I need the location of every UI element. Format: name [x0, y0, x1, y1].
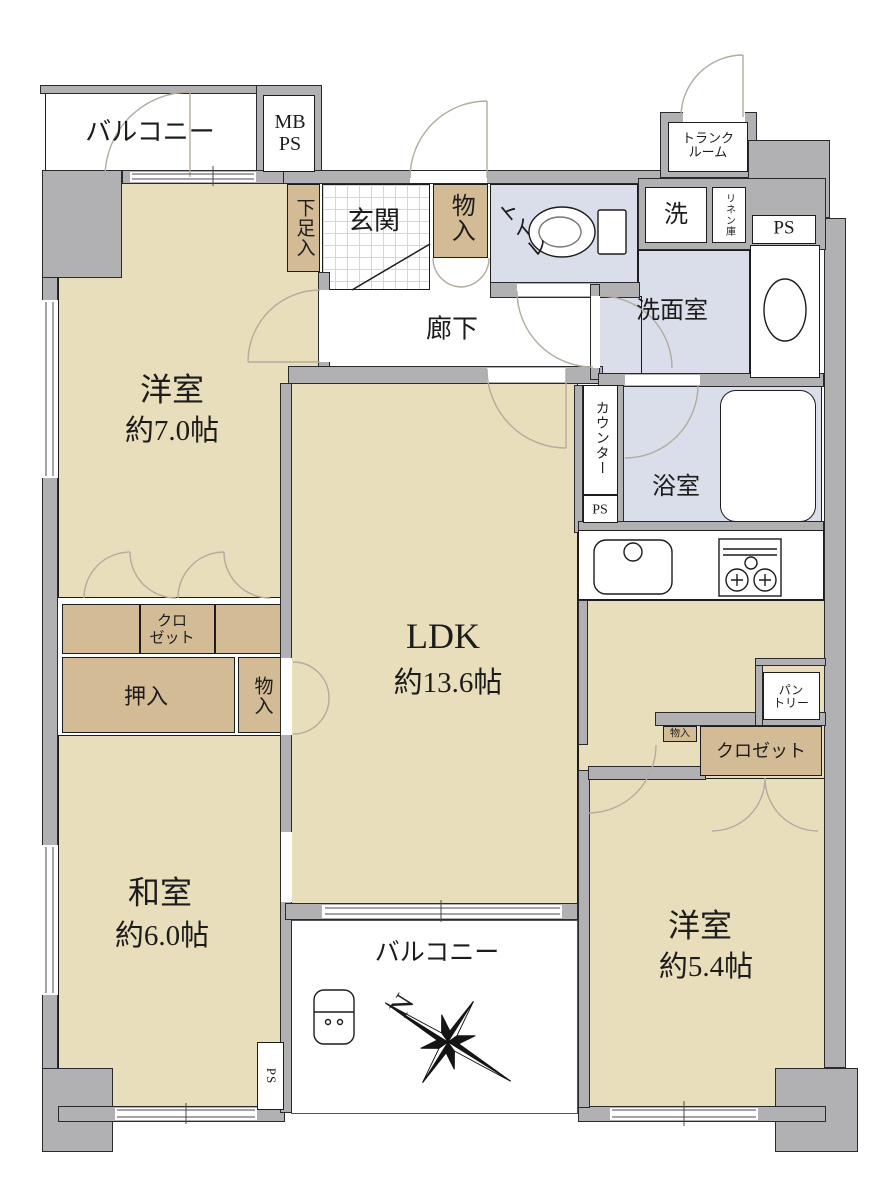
- closet-east: [700, 726, 822, 776]
- genkan-floor: [322, 184, 430, 290]
- ps-shaft-bottom: [257, 1042, 284, 1110]
- window-opening: [322, 905, 562, 918]
- door-opening: [319, 290, 330, 362]
- monoire-west: [238, 657, 283, 733]
- wall: [588, 766, 706, 780]
- window-opening: [115, 1108, 257, 1120]
- entry-door-opening: [410, 171, 487, 183]
- monoire-entry: [433, 184, 488, 258]
- oshiire-closet: [62, 657, 235, 733]
- floor-plan: バルコニー MB PS トランク ルーム 下足入 玄関 物入 トイレ 洗 リネン…: [0, 0, 893, 1200]
- linen-closet: [712, 187, 746, 243]
- door-opening: [281, 658, 292, 735]
- door-opening: [625, 375, 700, 385]
- west-room-54-floor: [588, 778, 826, 1110]
- balcony-top-floor: [45, 93, 258, 175]
- washroom-floor: [638, 250, 750, 378]
- window-opening: [42, 300, 58, 478]
- balcony-bottom-floor: [291, 920, 578, 1114]
- window-opening: [610, 1108, 758, 1120]
- wall: [578, 600, 588, 745]
- window-opening: [42, 845, 58, 995]
- wall: [574, 385, 583, 533]
- ldk-floor: [288, 383, 578, 905]
- wall: [755, 658, 826, 666]
- trunk-door-opening: [683, 112, 745, 122]
- trunk-room: [668, 122, 748, 172]
- wall: [755, 658, 763, 726]
- pantry: [763, 672, 820, 720]
- vanity-counter: [750, 245, 820, 378]
- washer-space: [645, 187, 707, 243]
- washroom-floor-2: [598, 296, 642, 378]
- closet-west-cell-1: [62, 604, 140, 654]
- closet-west-cell-2: [140, 604, 215, 654]
- mb-ps-shaft: [263, 95, 315, 172]
- closet-west-cell-3: [215, 604, 283, 654]
- door-opening: [487, 368, 566, 382]
- window-opening: [130, 172, 256, 182]
- bathtub: [720, 390, 816, 522]
- kitchen-area: [578, 530, 824, 600]
- door-opening: [517, 284, 592, 296]
- corridor-floor: [330, 286, 592, 370]
- wall: [578, 770, 590, 1108]
- pillar: [42, 170, 122, 278]
- kitchen-counter-strip: [583, 385, 618, 495]
- ps-shaft-mid: [583, 495, 618, 523]
- wall: [280, 383, 292, 1113]
- door-opening: [281, 832, 292, 902]
- ps-shaft-top: [752, 215, 816, 244]
- door-opening: [591, 296, 600, 368]
- japanese-room-floor: [58, 735, 283, 1110]
- toilet-floor: [490, 184, 638, 286]
- shoe-cabinet: [287, 184, 320, 272]
- monoire-small: [663, 726, 697, 742]
- wall: [824, 218, 846, 1068]
